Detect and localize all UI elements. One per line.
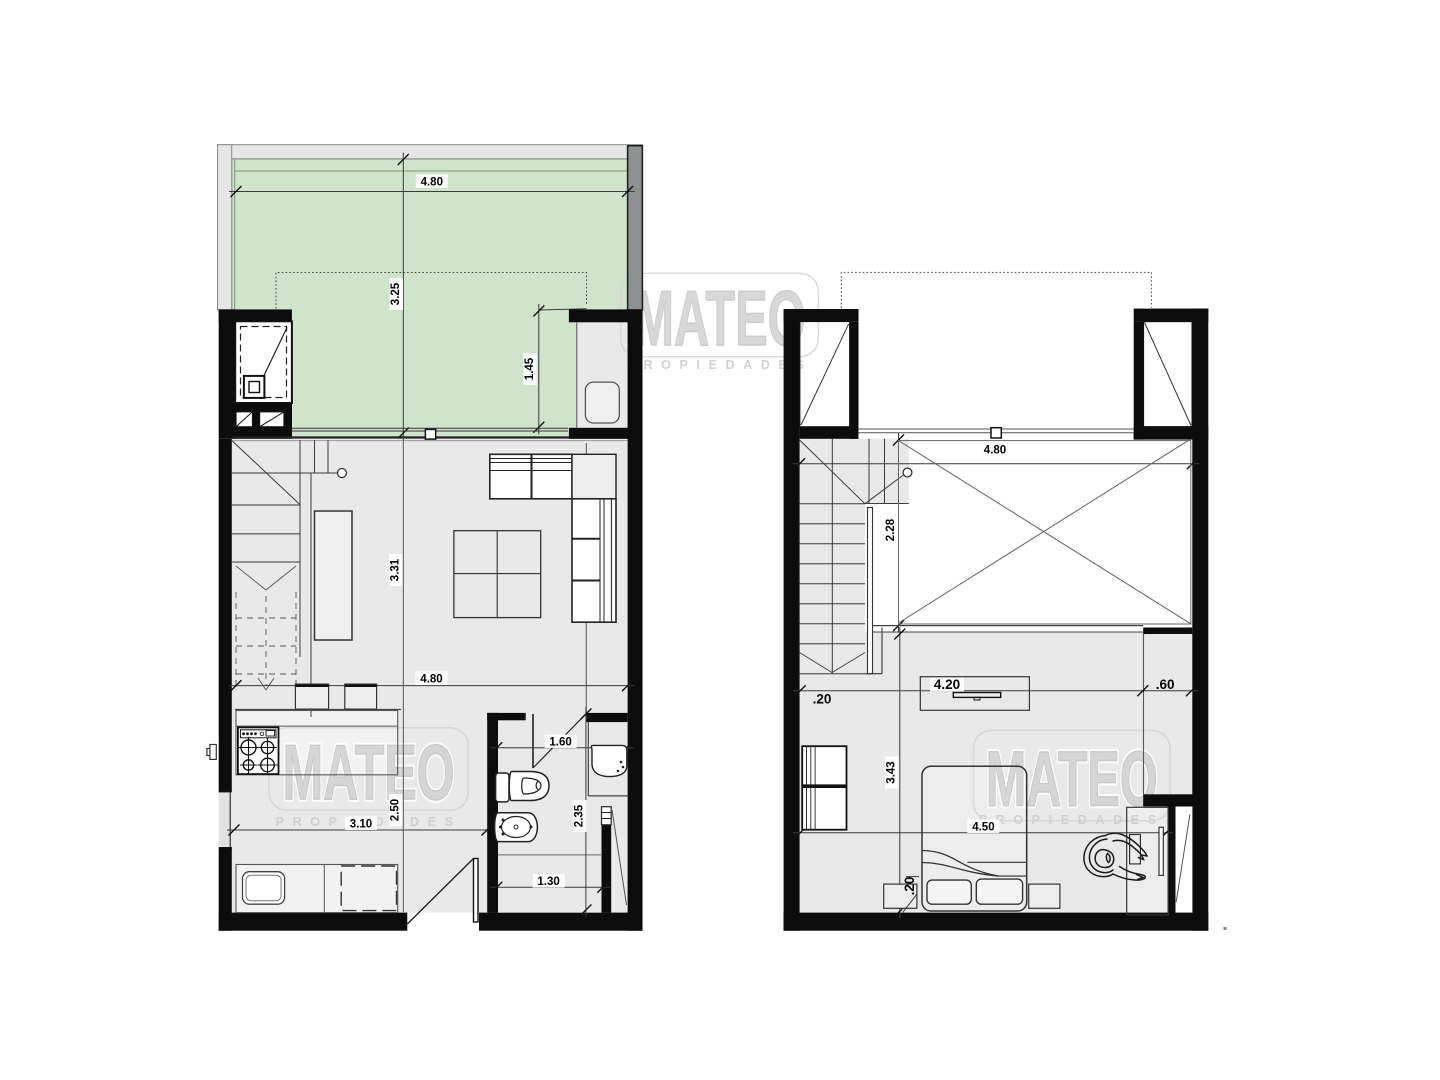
svg-text:4.20: 4.20 bbox=[934, 677, 960, 692]
svg-text:3.31: 3.31 bbox=[390, 558, 402, 581]
svg-text:MATEO: MATEO bbox=[986, 735, 1158, 823]
svg-text:2.35: 2.35 bbox=[574, 804, 586, 827]
svg-text:MATEO: MATEO bbox=[634, 274, 806, 362]
svg-text:4.80: 4.80 bbox=[984, 445, 1006, 457]
svg-text:3.25: 3.25 bbox=[390, 282, 402, 305]
svg-text:2.28: 2.28 bbox=[885, 518, 897, 541]
svg-text:.60: .60 bbox=[1156, 677, 1175, 692]
svg-text:2.50: 2.50 bbox=[390, 799, 402, 821]
svg-text:4.80: 4.80 bbox=[421, 177, 443, 189]
svg-text:1.45: 1.45 bbox=[524, 357, 536, 380]
svg-text:3.10: 3.10 bbox=[350, 819, 372, 831]
svg-text:3.43: 3.43 bbox=[885, 761, 897, 783]
svg-text:4.80: 4.80 bbox=[420, 674, 442, 686]
svg-text:MATEO: MATEO bbox=[283, 728, 455, 816]
svg-text:1.30: 1.30 bbox=[537, 876, 559, 888]
svg-text:.20: .20 bbox=[813, 692, 832, 707]
svg-text:.20: .20 bbox=[902, 877, 917, 896]
svg-text:PROPIEDADES: PROPIEDADES bbox=[979, 812, 1165, 827]
svg-text:4.50: 4.50 bbox=[972, 822, 994, 834]
svg-text:1.60: 1.60 bbox=[549, 737, 571, 749]
